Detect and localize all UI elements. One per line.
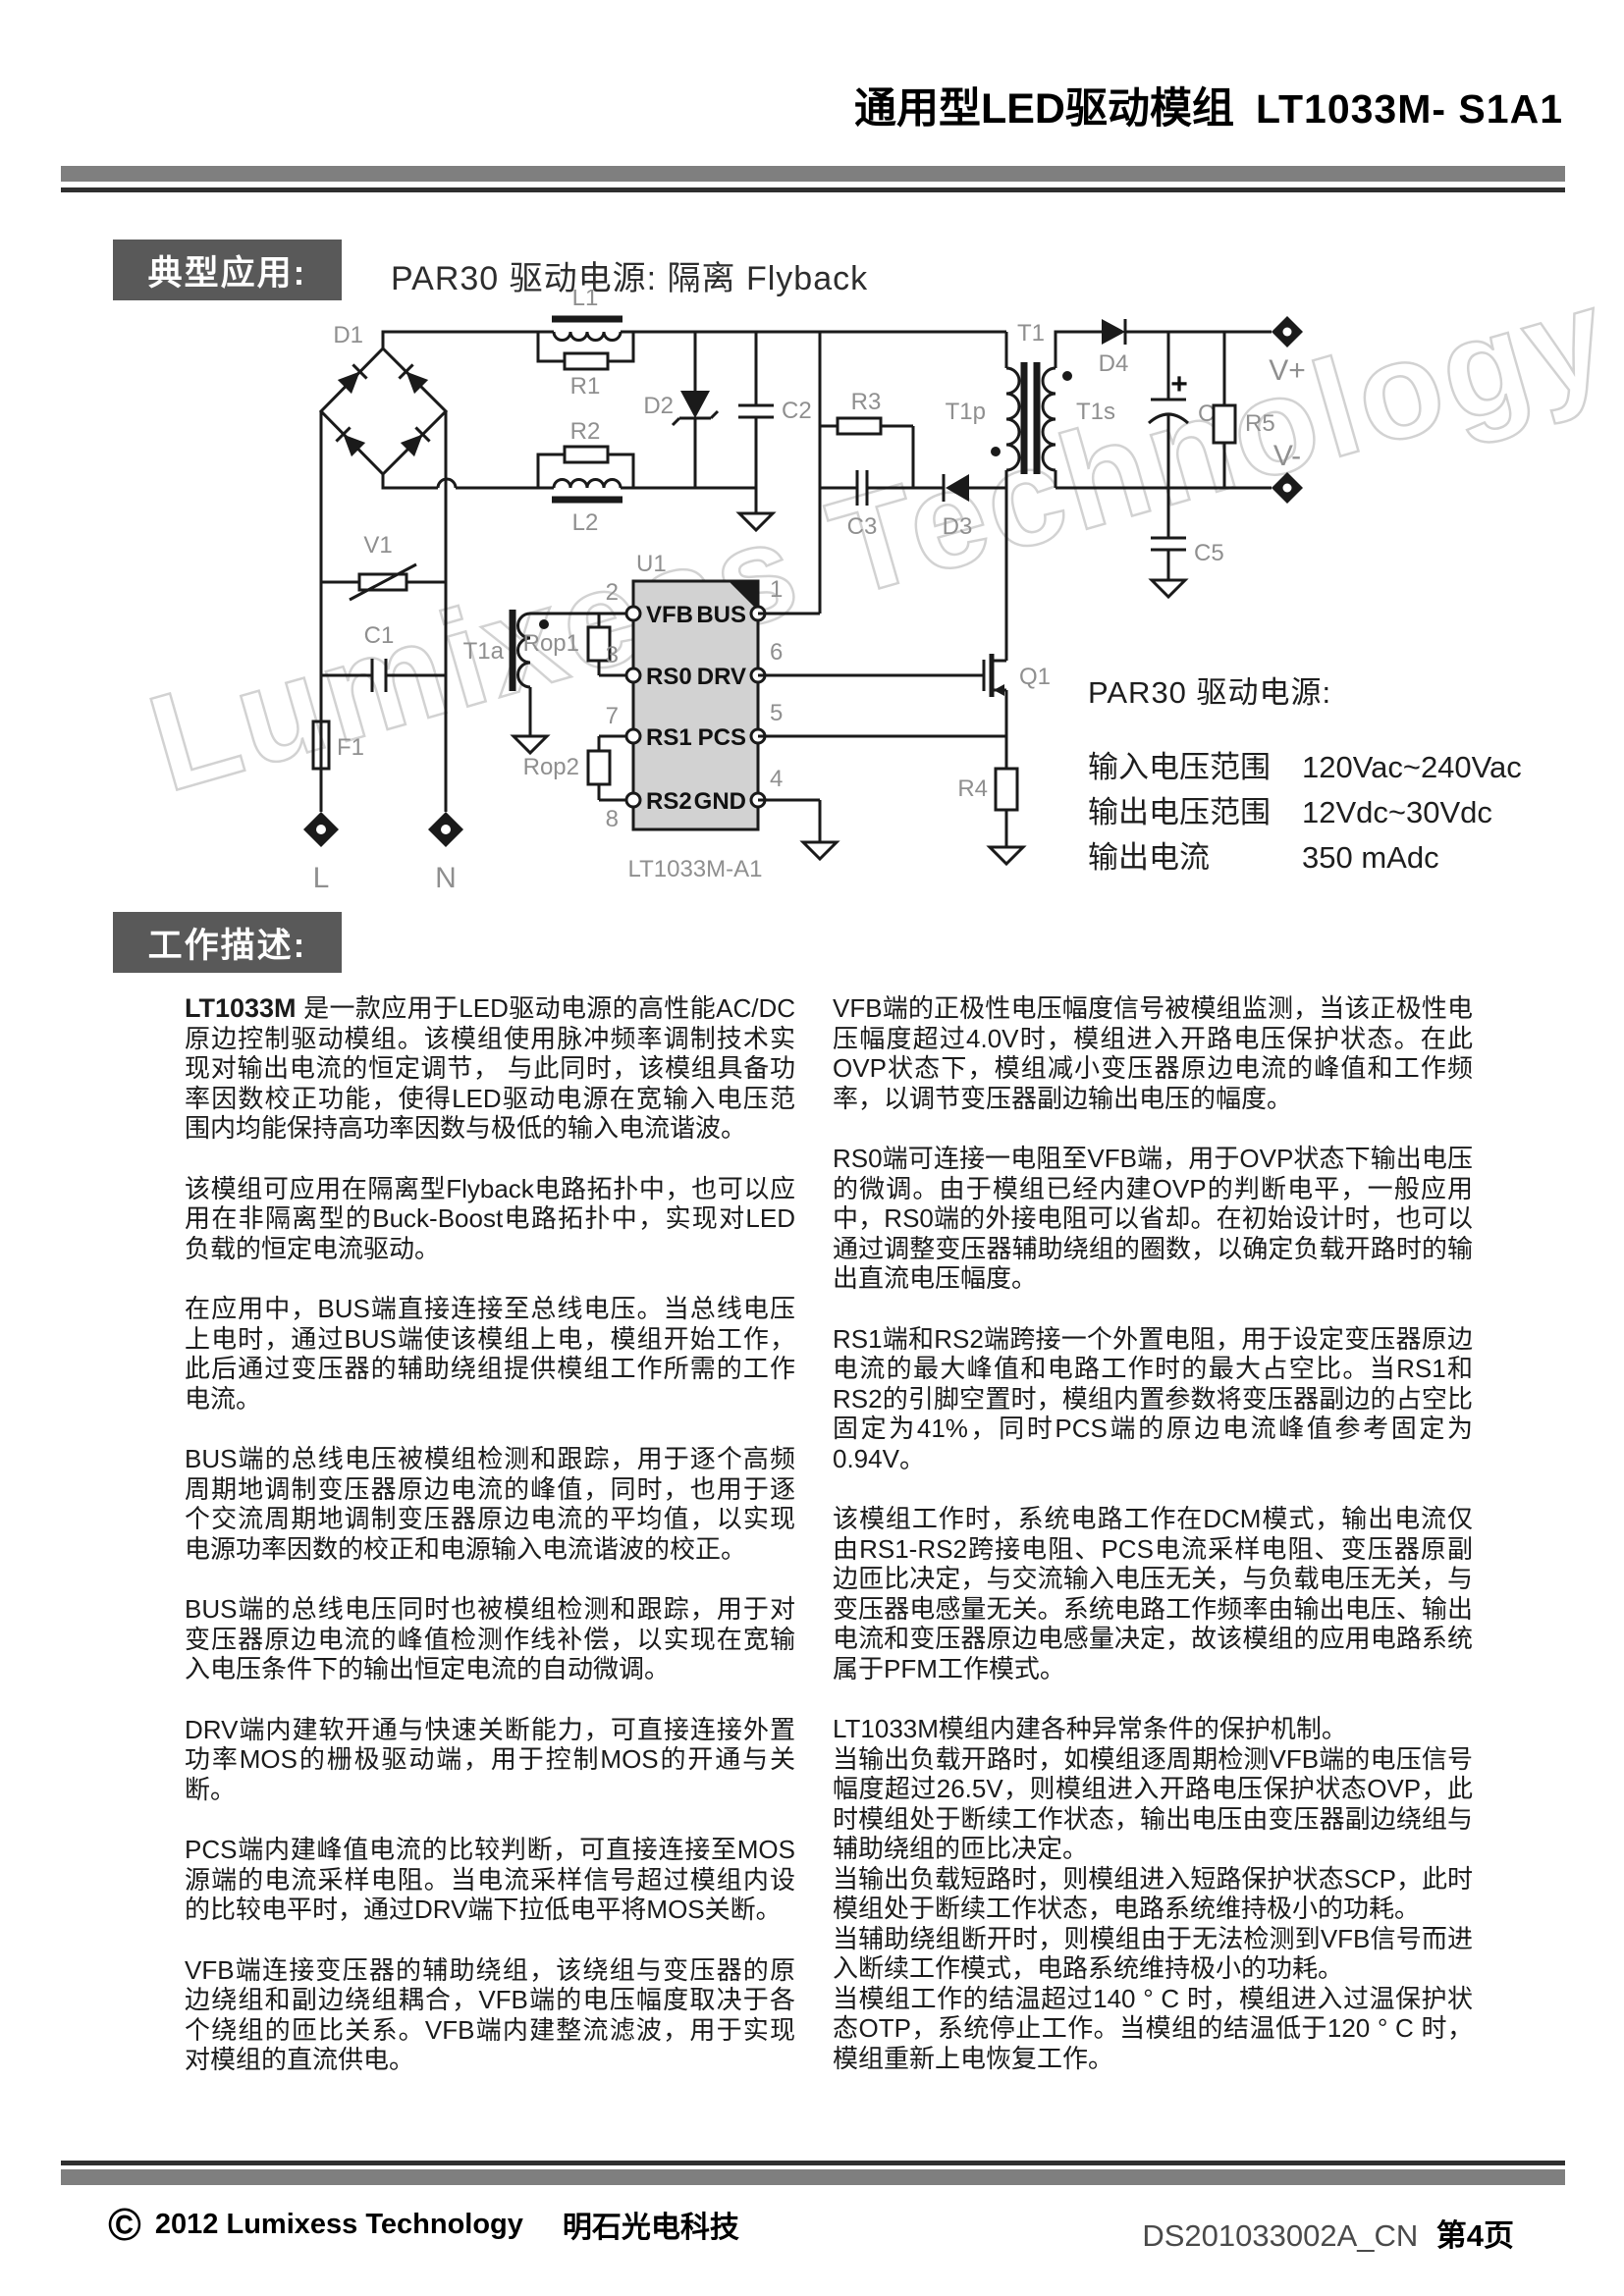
paragraph: 该模组可应用在隔离型Flyback电路拓扑中，也可以应用在非隔离型的Buck-B…: [185, 1174, 795, 1264]
resistor-rop2: Rop2: [523, 736, 633, 800]
paragraph: BUS端的总线电压同时也被模组检测和跟踪，用于对变压器原边电流的峰值检测作线补偿…: [185, 1594, 795, 1684]
paragraph: 当输出负载开路时，如模组逐周期检测VFB端的电压信号幅度超过26.5V，则模组进…: [833, 1744, 1473, 1864]
spec-value: 350 mAdc: [1302, 835, 1439, 881]
paragraph: RS1端和RS2端跨接一个外置电阻，用于设定变压器原边电流的最大峰值和电路工作时…: [833, 1324, 1473, 1474]
gnd-pin-wire: [758, 800, 837, 859]
label-t1a: T1a: [463, 638, 505, 665]
paragraph: PCS端内建峰值电流的比较判断，可直接连接至MOS源端的电流采样电阻。当电流采样…: [185, 1835, 795, 1925]
label-chip-part: LT1033M-A1: [628, 856, 763, 882]
capacitor-c1: C1: [321, 622, 446, 692]
pin-name-rs1: RS1: [646, 724, 692, 751]
label-d2: D2: [643, 393, 674, 419]
label-r5: R5: [1245, 410, 1275, 437]
varistor-v1: V1: [321, 532, 446, 600]
wire: [383, 332, 538, 348]
label-c1: C1: [364, 622, 395, 649]
paragraph: VFB端的正极性电压幅度信号被模组监测，当该正极性电压幅度超过4.0V时，模组进…: [833, 993, 1473, 1113]
page-title-cn: 通用型LED驱动模组: [854, 85, 1234, 133]
pin-name-pcs: PCS: [698, 724, 746, 751]
paragraph: VFB端连接变压器的辅助绕组，该绕组与变压器的原边绕组和副边绕组耦合，VFB端的…: [185, 1955, 795, 2075]
paragraph: 当辅助绕组断开时，则模组由于无法检测到VFB信号而进入断续工作模式，电路系统维持…: [833, 1924, 1473, 1984]
terminal-line: L: [303, 812, 339, 894]
paragraph: RS0端可连接一电阻至VFB端，用于OVP状态下输出电压的微调。由于模组已经内建…: [833, 1144, 1473, 1294]
header-bar: [61, 166, 1565, 182]
label-r1: R1: [570, 373, 601, 400]
ground-symbol: [803, 842, 837, 859]
par30-spec-block: PAR30 驱动电源: 输入电压范围 120Vac~240Vac 输出电压范围 …: [1088, 667, 1522, 881]
phase-dot: [1062, 371, 1072, 381]
paragraph: 当模组工作的结温超过140 ° C 时，模组进入过温保护状态OTP，系统停止工作…: [833, 1984, 1473, 2074]
page-title: 通用型LED驱动模组LT1033M- S1A1: [854, 75, 1563, 135]
paragraph: 在应用中，BUS端直接连接至总线电压。当总线电压上电时，通过BUS端使该模组上电…: [185, 1294, 795, 1414]
footer-company: 2012 Lumixess Technology: [155, 2209, 523, 2241]
resistor-r4: R4: [957, 769, 1023, 864]
ground-symbol: [739, 513, 773, 530]
label-t1s: T1s: [1076, 399, 1115, 425]
pin-num-3: 3: [606, 642, 619, 668]
label-rop2: Rop2: [523, 754, 579, 780]
spec-label: 输出电流: [1088, 835, 1302, 881]
label-f1: F1: [337, 734, 364, 761]
label-vminus: V-: [1273, 440, 1301, 472]
label-t1p: T1p: [946, 399, 986, 425]
pin-name-vfb: VFB: [646, 602, 693, 628]
terminal-vplus: V+: [1269, 316, 1306, 387]
spec-value: 12Vdc~30Vdc: [1302, 790, 1492, 835]
paragraph: LT1033M 是一款应用于LED驱动电源的高性能AC/DC原边控制驱动模组。该…: [185, 993, 795, 1144]
header-rule: [61, 187, 1565, 192]
phase-dot: [991, 447, 1001, 456]
footer-doc-info: DS201033002A_CN 第4页: [1142, 2211, 1514, 2255]
label-d4: D4: [1099, 350, 1129, 377]
label-d1: D1: [333, 322, 363, 348]
label-t1: T1: [1017, 320, 1045, 347]
snubber-diode-d3: D3: [913, 474, 1006, 540]
description-right-column: VFB端的正极性电压幅度信号被模组监测，当该正极性电压幅度超过4.0V时，模组进…: [833, 993, 1473, 2073]
label-u1: U1: [636, 551, 667, 577]
footer-rule: [61, 2161, 1565, 2165]
ground-symbol: [990, 847, 1023, 864]
pin-name-bus: BUS: [696, 602, 746, 628]
pin-num-5: 5: [770, 700, 783, 726]
label-r3: R3: [851, 389, 882, 415]
datasheet-page: 通用型LED驱动模组LT1033M- S1A1 典型应用: PAR30 驱动电源…: [0, 0, 1624, 2296]
footer-bar: [61, 2169, 1565, 2185]
paragraph: BUS端的总线电压被模组检测和跟踪，用于逐个高频周期地调制变压器原边电流的峰值，…: [185, 1444, 795, 1564]
label-vplus: V+: [1269, 354, 1306, 387]
pin-name-rs2: RS2: [646, 788, 692, 815]
spec-row-output-voltage: 输出电压范围 12Vdc~30Vdc: [1088, 790, 1522, 835]
label-c5: C5: [1194, 540, 1224, 566]
copyright-icon: ©: [108, 2202, 141, 2247]
spec-row-input-voltage: 输入电压范围 120Vac~240Vac: [1088, 745, 1522, 790]
footer-page-number: 第4页: [1436, 2218, 1514, 2253]
filter-r2-l2: R2 L2: [538, 418, 633, 536]
paragraph: 当输出负载短路时，则模组进入短路保护状态SCP，此时模组处于断续工作状态，电路系…: [833, 1864, 1473, 1924]
controller-chip-u1: U1 LT1033M-A1 VFB RS0 RS1 RS2 BUS DRV PC…: [606, 551, 784, 882]
pin-num-7: 7: [606, 703, 619, 729]
mosfet-q1: Q1: [984, 470, 1051, 769]
snubber-c3: C3: [820, 470, 913, 540]
spec-label: 输出电压范围: [1088, 790, 1302, 835]
label-r2: R2: [570, 418, 601, 445]
pin-num-2: 2: [606, 579, 619, 606]
paragraph-bold-lead: LT1033M: [185, 993, 297, 1023]
label-l1: L1: [572, 290, 599, 311]
pin-num-4: 4: [770, 766, 783, 792]
paragraph: 该模组工作时，系统电路工作在DCM模式，输出电流仅由RS1-RS2跨接电阻、PC…: [833, 1504, 1473, 1683]
footer-company-cn: 明石光电科技: [563, 2203, 739, 2246]
pin-name-rs0: RS0: [646, 664, 692, 690]
ground-symbol: [514, 736, 547, 753]
paragraph: DRV端内建软开通与快速关断能力，可直接连接外置功率MOS的栅极驱动端，用于控制…: [185, 1715, 795, 1805]
pin-num-6: 6: [770, 639, 783, 666]
terminal-vminus: V-: [1272, 440, 1303, 504]
label-terminal-n: N: [435, 862, 457, 894]
description-left-column: LT1033M 是一款应用于LED驱动电源的高性能AC/DC原边控制驱动模组。该…: [185, 993, 795, 2106]
pin-name-drv: DRV: [697, 664, 746, 690]
pin-name-gnd: GND: [694, 788, 746, 815]
label-c4-plus: +: [1170, 368, 1188, 400]
transformer-t1: T1 T1p T1s: [946, 320, 1115, 488]
spec-value: 120Vac~240Vac: [1302, 745, 1522, 790]
label-c3: C3: [847, 513, 878, 540]
zener-d2: D2: [643, 332, 718, 488]
paragraph: LT1033M模组内建各种异常条件的保护机制。: [833, 1714, 1473, 1744]
label-c2: C2: [782, 398, 812, 424]
spec-heading: PAR30 驱动电源:: [1088, 667, 1522, 712]
label-rop1: Rop1: [523, 630, 579, 657]
spec-label: 输入电压范围: [1088, 745, 1302, 790]
section-label-work-description: 工作描述:: [113, 912, 342, 973]
page-title-model: LT1033M- S1A1: [1256, 86, 1563, 132]
label-v1: V1: [363, 532, 392, 559]
ground-symbol: [1152, 580, 1185, 597]
pin-num-8: 8: [606, 806, 619, 832]
label-terminal-l: L: [313, 862, 330, 894]
label-d3: D3: [943, 513, 973, 540]
spec-row-output-current: 输出电流 350 mAdc: [1088, 835, 1522, 881]
label-q1: Q1: [1019, 664, 1051, 690]
terminal-neutral: N: [428, 812, 463, 894]
resistor-r5: R5: [1214, 332, 1275, 488]
pin-num-1: 1: [770, 576, 783, 603]
footer-copyright: © 2012 Lumixess Technology 明石光电科技: [108, 2202, 739, 2247]
filter-l1-r1: L1 R1: [538, 290, 633, 400]
capacitor-c5: C5: [1151, 488, 1224, 597]
phase-dot: [539, 619, 549, 629]
label-r4: R4: [957, 775, 988, 802]
footer-doc-number: DS201033002A_CN: [1142, 2218, 1418, 2253]
label-l2: L2: [572, 509, 599, 536]
wire: [383, 474, 438, 488]
capacitor-c2: C2: [738, 332, 812, 530]
